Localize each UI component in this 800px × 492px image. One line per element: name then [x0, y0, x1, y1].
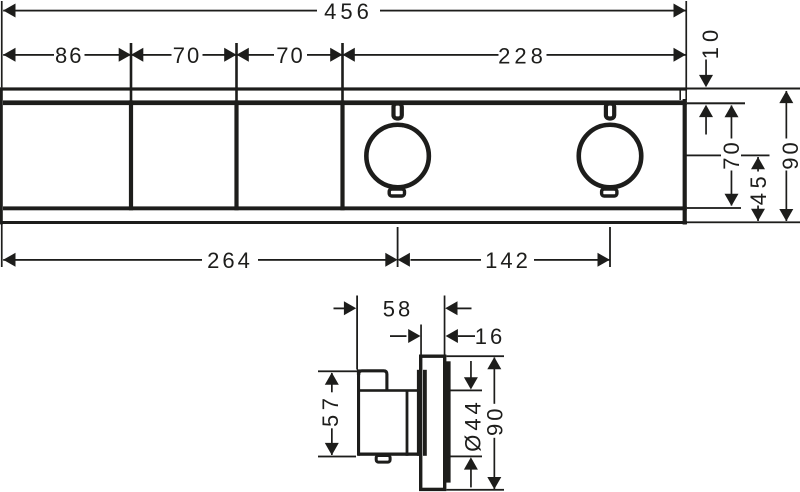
svg-text:90: 90 [483, 406, 508, 436]
svg-text:70: 70 [719, 139, 744, 169]
svg-text:142: 142 [485, 248, 531, 273]
svg-text:86: 86 [55, 43, 83, 68]
svg-text:10: 10 [698, 25, 723, 59]
svg-text:70: 70 [276, 43, 304, 68]
svg-text:57: 57 [318, 394, 343, 427]
svg-text:264: 264 [207, 248, 253, 273]
svg-text:228: 228 [498, 44, 547, 69]
svg-text:70: 70 [173, 43, 201, 68]
svg-text:90: 90 [778, 139, 800, 169]
svg-text:58: 58 [383, 297, 413, 322]
svg-text:16: 16 [475, 324, 505, 349]
svg-text:456: 456 [324, 0, 373, 24]
svg-text:45: 45 [746, 172, 771, 205]
